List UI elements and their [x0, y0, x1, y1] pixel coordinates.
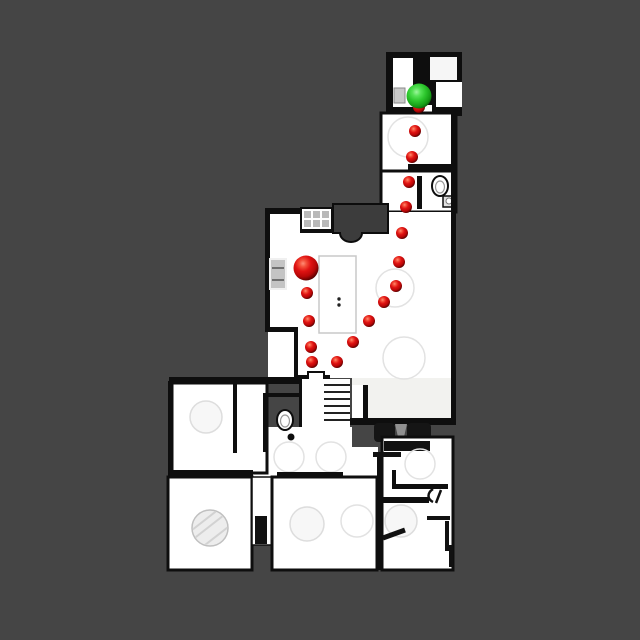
waypoint-dot-6 — [347, 336, 359, 348]
waypoint-dot-9 — [390, 280, 402, 292]
drain-icon — [288, 434, 295, 441]
room-bottom-middle — [272, 472, 377, 570]
waypoint-dot-10 — [393, 256, 405, 268]
waypoint-dot-5 — [331, 356, 343, 368]
start-marker — [294, 256, 319, 281]
floor-plan-canvas — [0, 0, 640, 640]
waypoint-dot-1 — [301, 287, 313, 299]
fireplace — [270, 259, 286, 289]
waypoint-dot-15 — [409, 125, 421, 137]
goal-marker — [407, 84, 432, 109]
kitchen-island — [319, 256, 356, 333]
bedroom-left-lower — [168, 477, 252, 570]
entry-fixture — [394, 88, 405, 103]
kitchen-stove — [301, 208, 332, 233]
bedroom-upper — [381, 113, 456, 171]
closet-bottom — [252, 477, 272, 545]
waypoint-dot-13 — [403, 176, 415, 188]
bathroom-upper — [381, 171, 456, 212]
waypoint-dot-8 — [378, 296, 390, 308]
topdown-map-viewport — [0, 0, 640, 640]
waypoint-dot-2 — [303, 315, 315, 327]
waypoint-dot-7 — [363, 315, 375, 327]
waypoint-dot-3 — [305, 341, 317, 353]
waypoint-dot-12 — [400, 201, 412, 213]
waypoint-dot-11 — [396, 227, 408, 239]
waypoint-dot-4 — [306, 356, 318, 368]
rooms-bottom-right — [373, 437, 453, 570]
waypoint-dot-14 — [406, 151, 418, 163]
